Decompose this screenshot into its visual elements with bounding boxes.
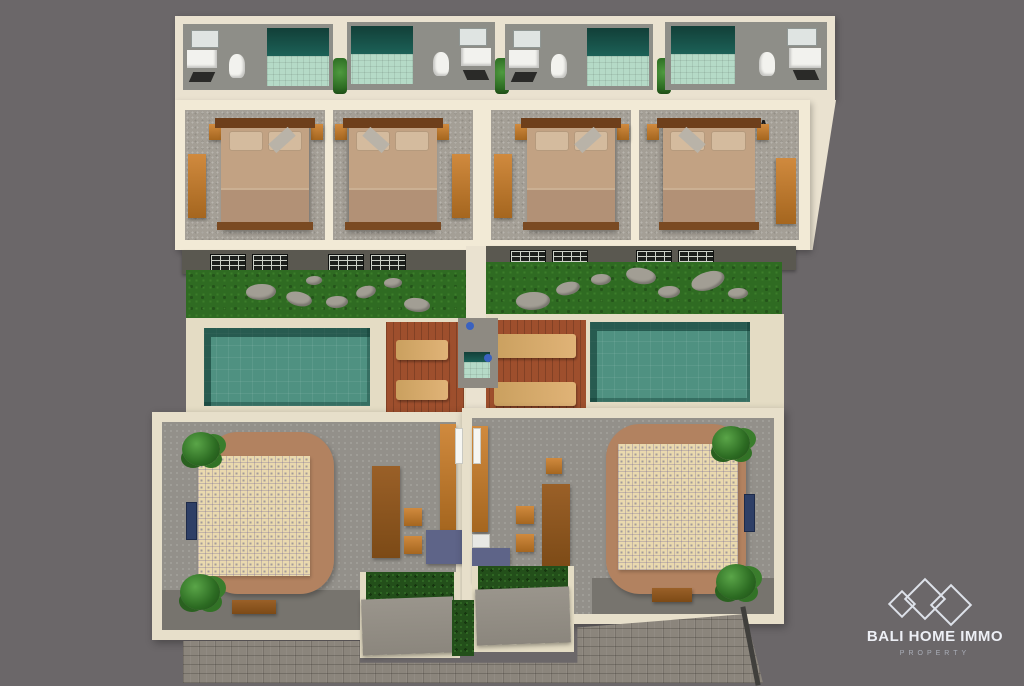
bed-icon	[527, 118, 615, 230]
outdoor-shower	[458, 318, 498, 388]
potted-plant-icon	[716, 564, 756, 600]
stepping-stone-icon	[326, 296, 348, 308]
bath-mat-icon	[511, 72, 537, 82]
blanket-icon	[663, 188, 755, 224]
wardrobe-icon	[188, 154, 206, 218]
stool-icon	[404, 536, 422, 554]
sun-deck	[386, 322, 464, 412]
logo-tagline-text: PROPERTY	[850, 650, 1020, 657]
stepping-stone-icon	[285, 289, 314, 309]
stepping-stone-icon	[355, 284, 377, 300]
pool-terrace-right	[466, 314, 784, 414]
mirror-icon	[191, 30, 219, 48]
bathroom-2	[347, 22, 495, 90]
shower-glass-icon	[267, 28, 329, 56]
stepping-stone-icon	[689, 268, 727, 294]
sink-vanity-icon	[509, 50, 539, 68]
logo: BALI HOME IMMO PROPERTY	[850, 578, 1020, 670]
headboard-icon	[521, 118, 621, 128]
patterned-rug-icon	[618, 444, 738, 570]
pillow-icon	[711, 131, 746, 151]
wardrobe-icon	[494, 154, 512, 218]
bathroom-4	[665, 22, 827, 90]
pillow-icon	[395, 131, 429, 151]
door-icon	[473, 428, 481, 464]
blanket-icon	[349, 188, 437, 224]
bathroom-3	[505, 24, 653, 90]
bedroom-1: ∧∧	[185, 110, 325, 240]
bedroom-2	[333, 110, 473, 240]
mirror-icon	[513, 30, 541, 48]
shower-head-icon	[484, 354, 492, 362]
stool-icon	[516, 534, 534, 552]
shower-tile-icon	[587, 56, 649, 86]
tv-icon	[744, 494, 755, 532]
garden-left	[186, 270, 466, 320]
bed-icon	[349, 118, 437, 230]
swimming-pool	[590, 322, 750, 402]
planter-icon	[333, 58, 347, 94]
shower-head-icon	[466, 322, 474, 330]
bed-frame-icon	[345, 222, 441, 230]
stepping-stone-icon	[591, 274, 611, 285]
swimming-pool	[204, 328, 370, 406]
stepping-stone-icon	[728, 288, 748, 299]
bed-icon	[663, 118, 755, 230]
pool-terrace-left	[186, 318, 466, 414]
sun-lounger-icon	[396, 340, 448, 360]
bedroom-4: ∧∧	[639, 110, 799, 240]
door-step-icon	[652, 588, 692, 602]
bed-icon	[221, 118, 309, 230]
shower-glass-icon	[351, 26, 413, 54]
sink-vanity-icon	[789, 48, 821, 68]
door-icon	[455, 428, 463, 464]
headboard-icon	[657, 118, 761, 128]
toilet-icon	[433, 52, 449, 76]
hedge-icon	[452, 600, 474, 656]
potted-plant-icon	[712, 426, 750, 460]
stepping-stone-icon	[555, 280, 581, 297]
pillow-icon	[229, 131, 263, 151]
bed-frame-icon	[523, 222, 619, 230]
sink-vanity-icon	[187, 50, 217, 68]
stepping-stone-icon	[246, 284, 276, 300]
door-step-icon	[232, 600, 276, 614]
bathroom-1	[183, 24, 333, 90]
stepping-stone-icon	[403, 296, 431, 313]
wardrobe-icon	[776, 158, 796, 224]
headboard-icon	[215, 118, 315, 128]
pillow-icon	[535, 131, 569, 151]
toilet-icon	[759, 52, 775, 76]
shower-tile-icon	[464, 362, 490, 378]
bedroom-3	[491, 110, 631, 240]
sink-vanity-icon	[461, 48, 491, 66]
stepping-stone-icon	[384, 278, 402, 288]
stepping-stone-icon	[658, 286, 680, 298]
shower-tile-icon	[351, 54, 413, 84]
blanket-icon	[221, 188, 309, 224]
bath-mat-icon	[189, 72, 215, 82]
bedroom-block: ∧∧	[175, 100, 810, 250]
stepping-stone-icon	[516, 292, 550, 310]
stool-icon	[546, 458, 562, 474]
bed-frame-icon	[217, 222, 313, 230]
shower-glass-icon	[587, 28, 649, 56]
headboard-icon	[343, 118, 443, 128]
villa-render-canvas: { "logo": { "brand": "BALI HOME IMMO", "…	[0, 0, 1024, 683]
sun-lounger-icon	[494, 334, 576, 358]
tv-icon	[186, 502, 197, 540]
sun-lounger-icon	[396, 380, 448, 400]
blanket-icon	[527, 188, 615, 224]
shower-glass-icon	[671, 26, 735, 54]
potted-plant-icon	[182, 432, 220, 466]
potted-plant-icon	[180, 574, 220, 610]
mirror-icon	[787, 28, 817, 46]
outer-wall	[806, 100, 836, 250]
shower-tile-icon	[671, 54, 735, 84]
stepping-stone-icon	[625, 265, 658, 287]
sun-lounger-icon	[494, 382, 576, 406]
bathroom-block	[175, 16, 835, 100]
entrance-courtyard-left	[360, 572, 460, 658]
stool-icon	[516, 506, 534, 524]
wardrobe-icon	[452, 154, 470, 218]
shower-tile-icon	[267, 56, 329, 86]
bath-mat-icon	[793, 70, 819, 80]
logo-brand-text: BALI HOME IMMO	[850, 628, 1020, 645]
kitchen-island-icon	[426, 530, 464, 564]
entrance-gate	[361, 596, 455, 655]
fridge-icon	[472, 534, 490, 548]
toilet-icon	[229, 54, 245, 78]
pantry-cabinet-icon	[542, 484, 570, 570]
kitchen-counter-icon	[440, 424, 456, 530]
entrance-gate	[475, 586, 571, 645]
pantry-cabinet-icon	[372, 466, 400, 558]
mirror-icon	[459, 28, 487, 46]
toilet-icon	[551, 54, 567, 78]
bed-frame-icon	[659, 222, 759, 230]
stepping-stone-icon	[306, 276, 322, 285]
entrance-courtyard-right	[472, 566, 574, 652]
patterned-rug-icon	[198, 456, 310, 576]
stool-icon	[404, 508, 422, 526]
garden-right	[486, 262, 782, 314]
bath-mat-icon	[463, 70, 489, 80]
